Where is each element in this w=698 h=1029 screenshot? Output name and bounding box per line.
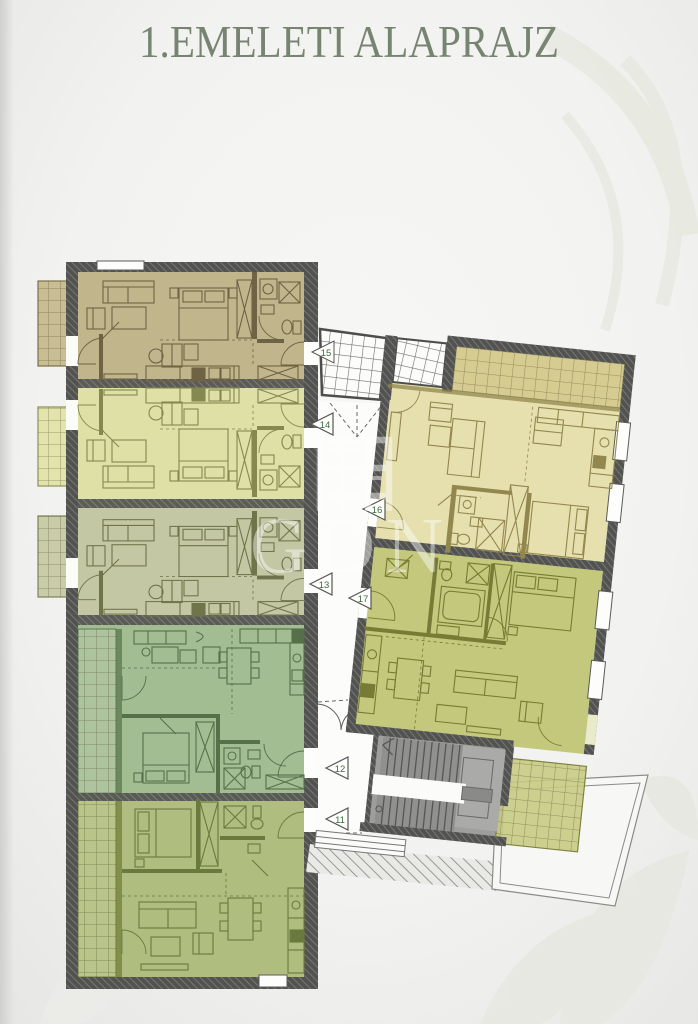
svg-text:11: 11 xyxy=(335,815,345,826)
svg-text:15: 15 xyxy=(321,348,332,359)
svg-text:12: 12 xyxy=(335,764,346,775)
svg-text:17: 17 xyxy=(358,594,369,605)
svg-text:1.EMELETI ALAPRAJZ: 1.EMELETI ALAPRAJZ xyxy=(139,16,559,67)
svg-text:14: 14 xyxy=(320,420,331,431)
svg-text:GDN: GDN xyxy=(250,503,454,590)
